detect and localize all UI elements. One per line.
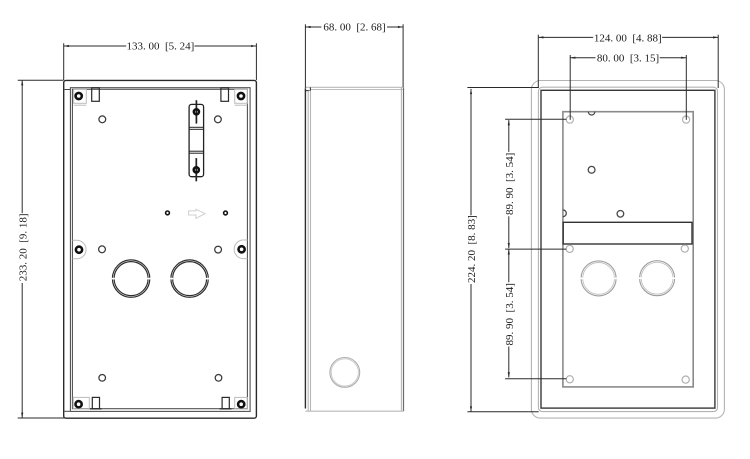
svg-text:89. 90 [3. 54]: 89. 90 [3. 54] — [504, 153, 516, 215]
svg-text:124. 00 [4. 88]: 124. 00 [4. 88] — [594, 33, 662, 45]
svg-text:68. 00 [2. 68]: 68. 00 [2. 68] — [323, 22, 385, 34]
svg-text:133. 00 [5. 24]: 133. 00 [5. 24] — [126, 40, 194, 52]
svg-text:224. 20 [8. 83]: 224. 20 [8. 83] — [466, 215, 478, 283]
svg-text:80. 00 [3. 15]: 80. 00 [3. 15] — [597, 52, 659, 64]
svg-text:233. 20 [9. 18]: 233. 20 [9. 18] — [17, 213, 29, 281]
svg-text:89. 90 [3. 54]: 89. 90 [3. 54] — [504, 283, 516, 345]
